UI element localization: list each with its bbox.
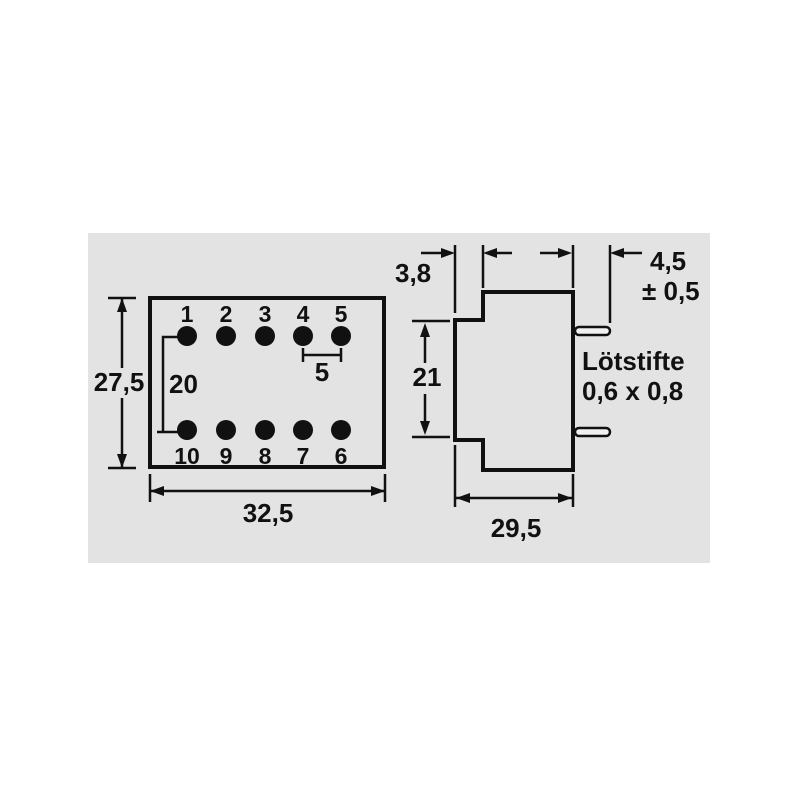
arrow-down-icon [420,421,430,435]
pin-dot-5 [331,326,351,346]
arrow-up-icon [117,298,127,312]
solder-pin-bottom [575,428,610,436]
pin-number-4: 4 [297,301,310,327]
arrow-right-icon [558,493,572,503]
side-view: 3,8 4,5 ± 0,5 21 [395,245,700,543]
pin-dot-4 [293,326,313,346]
solder-pin-note-line1: Lötstifte [582,346,685,376]
pin-number-3: 3 [259,301,272,327]
flange-offset-label: 3,8 [395,258,431,288]
depth-label: 29,5 [491,513,542,543]
row-spacing-dimension: 20 [157,337,198,432]
pin-dot-8 [255,420,275,440]
pin-pitch-dimension: 5 [303,348,341,387]
solder-pin-note: Lötstifte 0,6 x 0,8 [582,346,685,406]
pin-number-1: 1 [181,301,194,327]
depth-dimension: 29,5 [455,445,573,543]
pin-dot-10 [177,420,197,440]
pin-pitch-label: 5 [315,357,329,387]
flange-offset-lines [421,245,512,313]
height-label: 27,5 [94,367,145,397]
flange-offset-dimension: 3,8 [395,245,512,313]
depth-dimension-lines [455,445,573,507]
pin-number-7: 7 [297,443,310,469]
side-view-outline [455,292,573,470]
arrow-left-icon [456,493,470,503]
body-height-dimension: 21 [412,321,450,437]
arrow-left-icon [610,248,624,258]
arrow-right-icon [441,248,455,258]
top-view: 1 2 3 4 5 10 9 8 7 6 20 5 [94,298,385,528]
drawing-page: 1 2 3 4 5 10 9 8 7 6 20 5 [0,0,800,800]
arrow-left-icon [483,248,497,258]
pin-length-label: 4,5 [650,246,686,276]
pin-dot-7 [293,420,313,440]
arrow-left-icon [150,486,164,496]
pin-number-8: 8 [259,443,272,469]
arrow-down-icon [117,454,127,468]
width-dimension: 32,5 [150,474,385,528]
height-dimension: 27,5 [94,298,145,468]
transformer-dimension-drawing: 1 2 3 4 5 10 9 8 7 6 20 5 [88,233,710,563]
pin-dot-9 [216,420,236,440]
solder-pin-note-line2: 0,6 x 0,8 [582,376,683,406]
solder-pin-top [575,327,610,335]
pin-number-2: 2 [220,301,233,327]
pin-number-9: 9 [220,443,233,469]
arrow-right-icon [558,248,572,258]
pin-dot-6 [331,420,351,440]
technical-drawing-panel: 1 2 3 4 5 10 9 8 7 6 20 5 [88,233,710,563]
pin-dot-2 [216,326,236,346]
pin-number-10: 10 [174,443,200,469]
pin-number-6: 6 [335,443,348,469]
pin-length-lines [540,245,642,323]
width-label: 32,5 [243,498,294,528]
arrow-right-icon [371,486,385,496]
pin-dot-3 [255,326,275,346]
arrow-up-icon [420,323,430,337]
pin-length-tolerance-label: ± 0,5 [642,276,700,306]
pin-length-dimension: 4,5 ± 0,5 [540,245,700,323]
pin-number-5: 5 [335,301,348,327]
body-height-label: 21 [413,362,442,392]
row-spacing-label: 20 [169,369,198,399]
